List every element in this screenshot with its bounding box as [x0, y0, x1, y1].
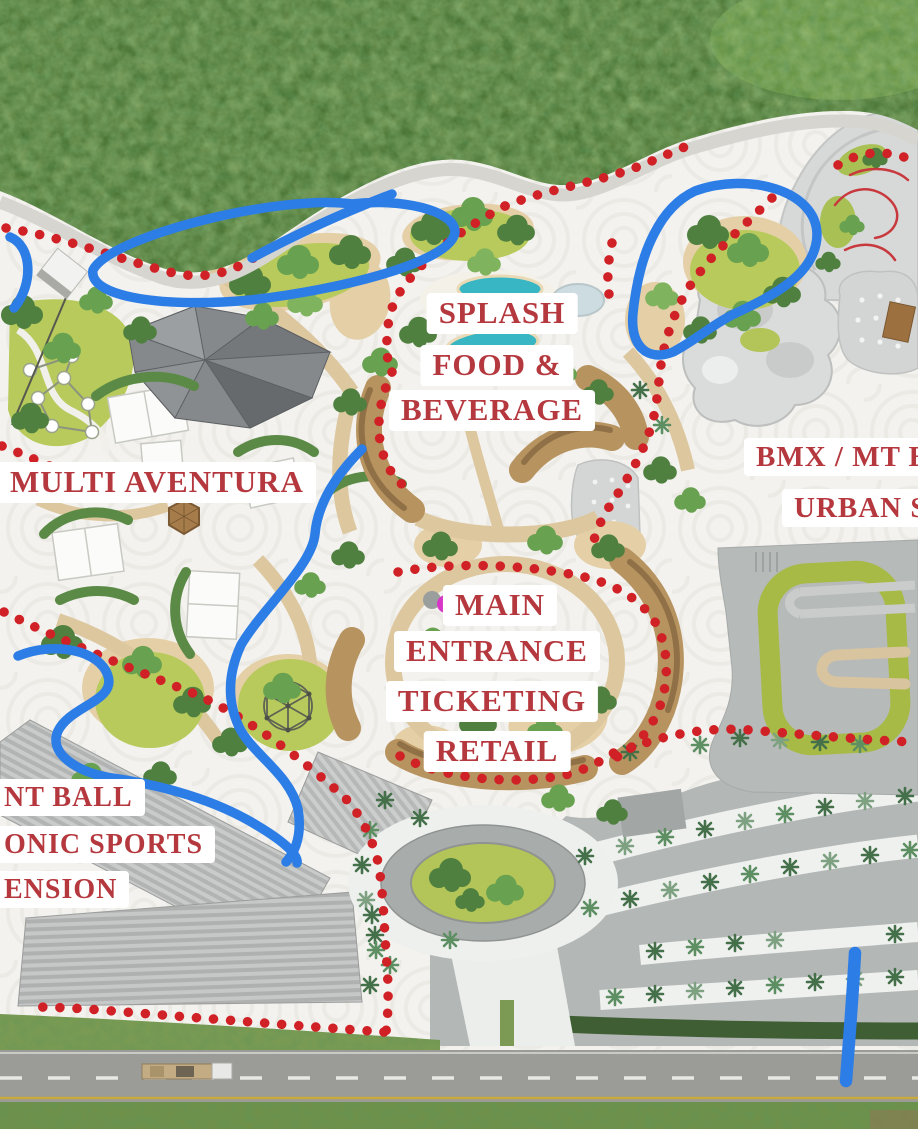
hedge-row — [560, 1024, 918, 1031]
label-paintball-line3: ENSION — [0, 871, 129, 908]
label-paintball-line2: ONIC SPORTS — [0, 826, 215, 863]
site-plan-map: SPLASH FOOD & BEVERAGE MULTI AVENTURA MA… — [0, 0, 918, 1129]
label-paintball-line1: NT BALL — [0, 779, 145, 816]
map-graphics — [0, 0, 918, 1129]
label-bmx-line1: BMX / MT BIK — [744, 438, 918, 476]
label-entrance-line2: ENTRANCE — [394, 631, 600, 672]
label-splash-line2: FOOD & — [420, 345, 573, 386]
queue-ramp-zone — [710, 540, 918, 795]
truck — [142, 1063, 232, 1079]
label-splash-line3: BEVERAGE — [389, 390, 595, 431]
label-multi-aventura: MULTI AVENTURA — [0, 462, 316, 503]
label-entrance-line1: MAIN — [443, 585, 557, 626]
label-bmx-line2: URBAN S — [782, 489, 918, 527]
label-splash-line1: SPLASH — [427, 293, 578, 334]
label-entrance-line4: RETAIL — [424, 731, 571, 772]
roundabout — [348, 805, 618, 961]
label-entrance-line3: TICKETING — [386, 681, 598, 722]
